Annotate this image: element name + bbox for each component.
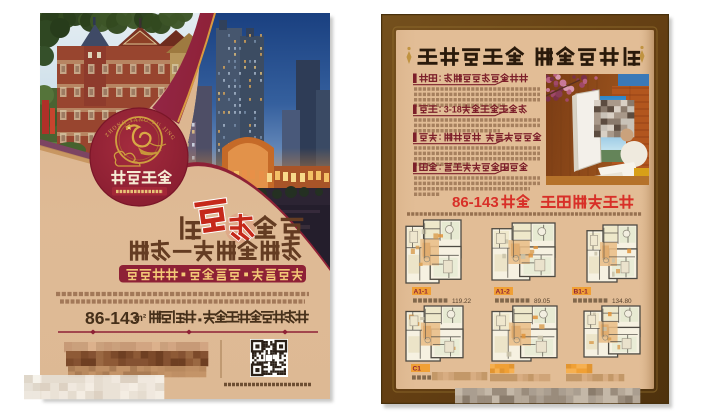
svg-text:86-143: 86-143 xyxy=(85,308,140,328)
svg-text:89.05: 89.05 xyxy=(534,298,550,305)
svg-text:A1-2: A1-2 xyxy=(496,289,511,296)
svg-text:86-143: 86-143 xyxy=(452,194,499,211)
svg-text:3-18: 3-18 xyxy=(444,105,462,115)
svg-text:134.80: 134.80 xyxy=(612,298,632,305)
svg-text:C1: C1 xyxy=(413,366,422,373)
svg-text:119.22: 119.22 xyxy=(452,298,472,305)
svg-text:B1-1: B1-1 xyxy=(574,289,589,296)
svg-text:A1-1: A1-1 xyxy=(414,289,429,296)
svg-text:m²: m² xyxy=(134,313,147,324)
